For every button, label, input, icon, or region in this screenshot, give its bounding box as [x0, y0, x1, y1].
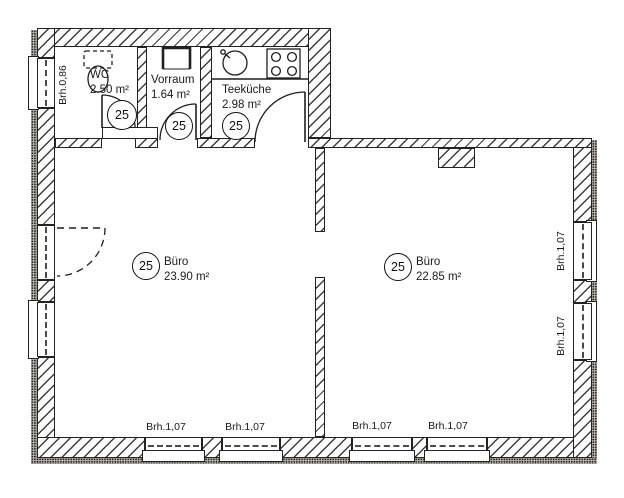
- window-label-bottom-3: Brh.1,07: [337, 420, 407, 432]
- window-label-right-2: Brh.1,07: [555, 306, 567, 366]
- window-label-bottom-1: Brh.1,07: [131, 421, 201, 433]
- window-label-bottom-2: Brh.1,07: [210, 421, 280, 433]
- wc-area: 2.50 m²: [90, 83, 129, 98]
- buero-left-name: Büro: [164, 255, 209, 270]
- vorraum-shaft: [163, 48, 190, 69]
- window-label-left: Brh.0,86: [57, 55, 69, 115]
- floor-plan: WC 2.50 m² 25 Vorraum 1.64 m² 25 Teeküch…: [0, 0, 624, 498]
- buero-left-area: 23.90 m²: [164, 270, 209, 285]
- vorraum-number-badge: 25: [165, 112, 193, 140]
- wc-label: WC 2.50 m²: [90, 68, 129, 98]
- buero-left-label: Büro 23.90 m²: [164, 255, 209, 285]
- stove-icon: [267, 49, 300, 78]
- teekueche-number-badge: 25: [222, 112, 250, 140]
- window-label-bottom-4: Brh.1,07: [413, 420, 483, 432]
- vorraum-name: Vorraum: [151, 73, 194, 88]
- teekueche-name: Teeküche: [222, 83, 271, 98]
- wc-number-badge: 25: [107, 100, 137, 130]
- buero-right-area: 22.85 m²: [416, 270, 461, 285]
- teekueche-area: 2.98 m²: [222, 98, 271, 113]
- buero-left-number-badge: 25: [132, 252, 160, 280]
- vorraum-label: Vorraum 1.64 m²: [151, 73, 194, 103]
- teekueche-label: Teeküche 2.98 m²: [222, 83, 271, 113]
- sink-icon: [221, 50, 247, 75]
- buero-right-number-badge: 25: [384, 253, 412, 281]
- wc-name: WC: [90, 68, 129, 83]
- buero-right-label: Büro 22.85 m²: [416, 255, 461, 285]
- buero-right-name: Büro: [416, 255, 461, 270]
- balcony-door-dashed-arc: [57, 228, 105, 276]
- window-label-right-1: Brh.1,07: [555, 221, 567, 281]
- vorraum-area: 1.64 m²: [151, 88, 194, 103]
